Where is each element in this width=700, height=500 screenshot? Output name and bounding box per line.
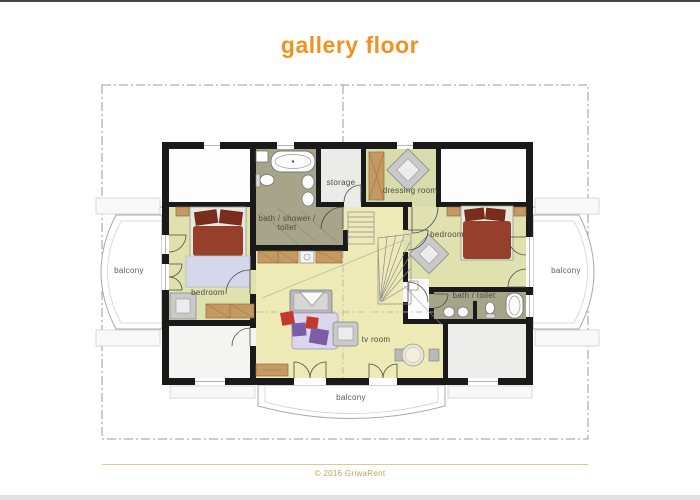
hall-wardrobes (258, 251, 342, 263)
label-bedroom-right: bedroom (407, 230, 487, 239)
label-balcony-right: balcony (533, 266, 599, 275)
label-tv-room: tv room (336, 335, 416, 344)
label-storage: storage (321, 178, 361, 187)
sideboard-tv-room (256, 364, 288, 376)
dresser-left (206, 304, 254, 318)
label-bedroom-left: bedroom (168, 288, 248, 297)
floor-plan-page: gallery floor (0, 0, 700, 500)
label-dressing-room: dressing room (366, 186, 454, 195)
label-bath-shower-toilet: bath / shower / toilet (254, 214, 320, 232)
label-bath-toilet: bath / toilet (434, 291, 514, 300)
footer-divider (102, 464, 588, 465)
label-balcony-bottom: balcony (311, 393, 391, 402)
copyright-text: © 2016 GriwaRent (0, 469, 700, 478)
label-balcony-left: balcony (96, 266, 162, 275)
floor-plan-drawing (0, 2, 700, 500)
tv-sideboard (290, 290, 332, 313)
